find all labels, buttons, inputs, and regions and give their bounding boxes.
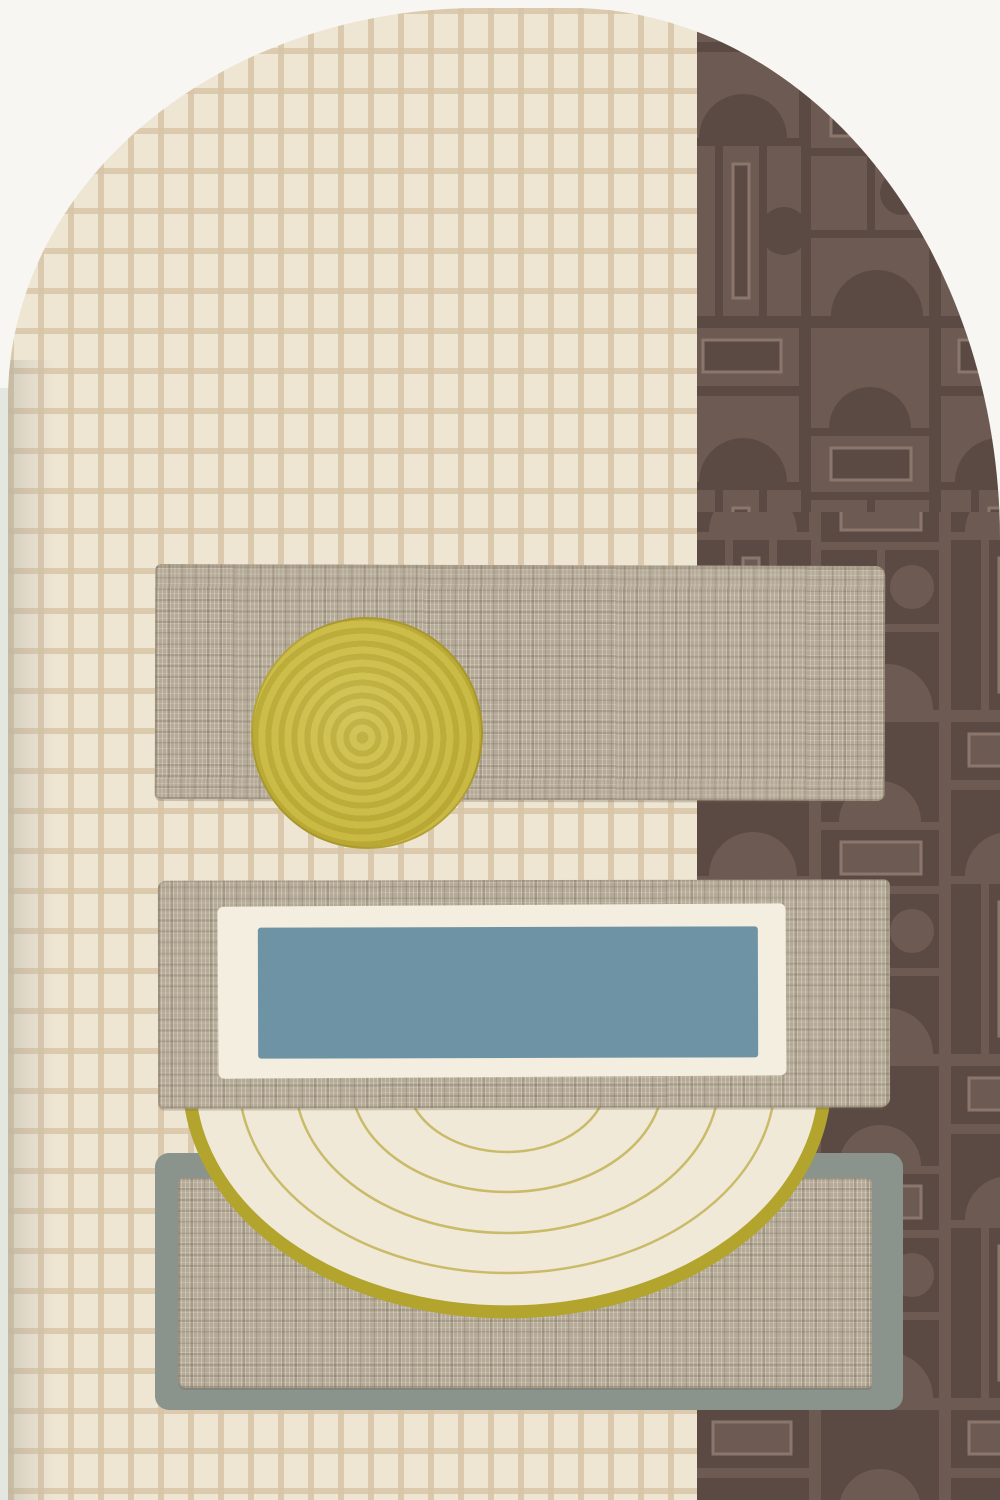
artwork-page: { "artwork": { "kind": "abstract-geometr… (0, 0, 1000, 1500)
arch-panel (8, 8, 1000, 1500)
blue-panel (258, 926, 758, 1058)
textured-bar-middle (158, 879, 890, 1108)
mustard-circle (251, 617, 483, 849)
cream-semicircle (177, 1074, 837, 1334)
brown-tile-column-upper (697, 8, 1000, 512)
arch-left-shadow (8, 360, 60, 1500)
cream-frame (217, 903, 786, 1078)
